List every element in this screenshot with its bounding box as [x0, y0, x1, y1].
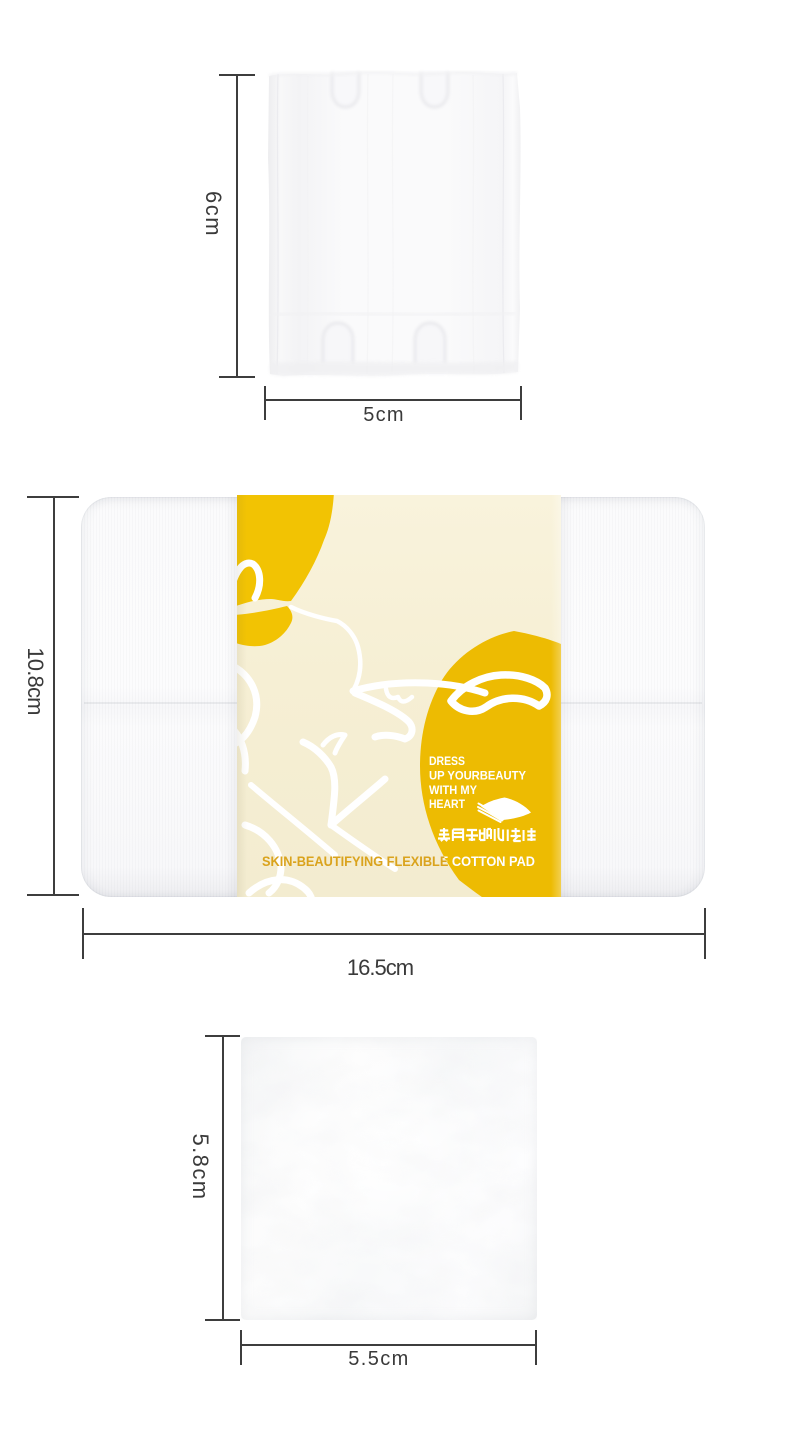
svg-text:HEART: HEART	[429, 797, 465, 811]
svg-text:UP YOURBEAUTY: UP YOURBEAUTY	[429, 769, 527, 783]
svg-text:WITH MY: WITH MY	[429, 783, 478, 797]
svg-text:DRESS: DRESS	[429, 754, 465, 768]
